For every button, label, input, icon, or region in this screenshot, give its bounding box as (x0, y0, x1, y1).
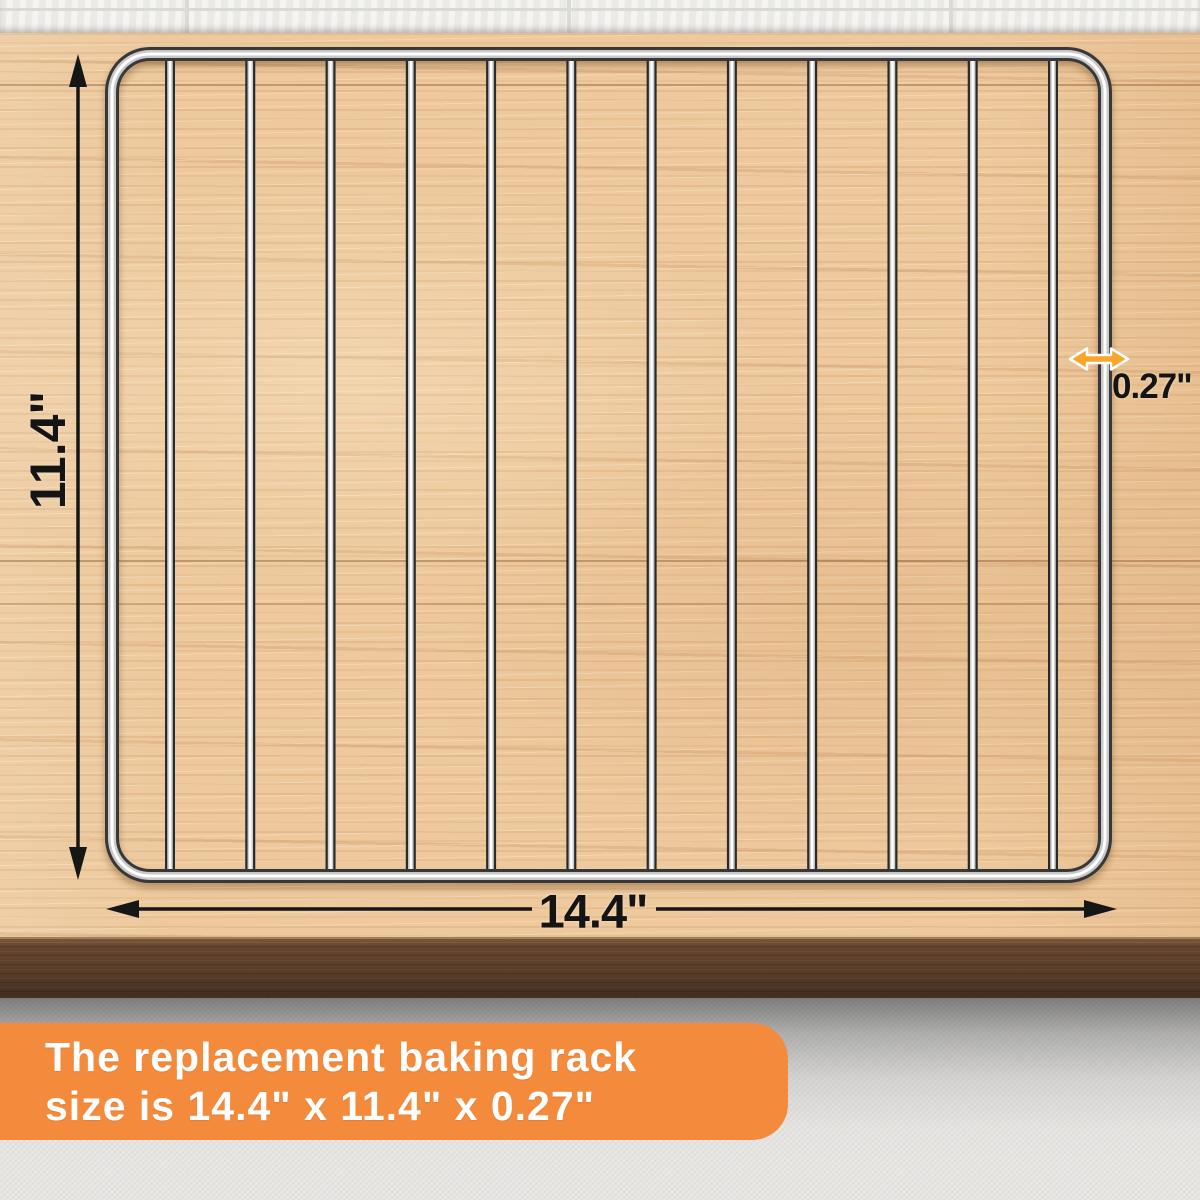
rack-and-dimensions-drawing (0, 0, 1200, 1200)
banner-line1: The replacement baking rack (45, 1037, 788, 1078)
product-size-infographic: 11.4" 14.4" 0.27" The replacement baking… (0, 0, 1200, 1200)
rack-frame (112, 54, 1105, 876)
thickness-dimension-label: 0.27" (1112, 367, 1192, 407)
height-dimension-label: 11.4" (19, 391, 77, 509)
width-dimension-label: 14.4" (539, 884, 648, 939)
rack-shadow (112, 59, 1105, 881)
banner-line2: size is 14.4" x 11.4" x 0.27" (45, 1086, 788, 1127)
rack-wires (170, 60, 1053, 870)
size-banner: The replacement baking rack size is 14.4… (0, 1023, 788, 1140)
